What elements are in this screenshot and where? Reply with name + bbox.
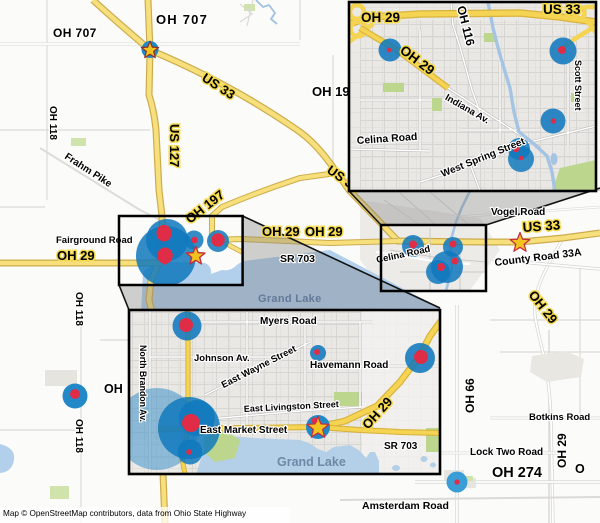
- svg-text:OH: OH: [104, 382, 123, 396]
- svg-text:OH 707: OH 707: [53, 26, 97, 40]
- svg-text:East Market Street: East Market Street: [200, 425, 288, 436]
- svg-text:OH 29: OH 29: [305, 224, 343, 239]
- svg-text:US 33: US 33: [522, 217, 561, 235]
- svg-text:OH 19: OH 19: [312, 84, 350, 99]
- svg-text:North Brandon Av.: North Brandon Av.: [138, 345, 148, 422]
- svg-text:SR 703: SR 703: [384, 441, 418, 452]
- svg-text:Grand Lake: Grand Lake: [258, 293, 322, 305]
- svg-text:Scott Street: Scott Street: [573, 60, 583, 111]
- svg-text:OH 29: OH 29: [361, 10, 400, 25]
- svg-text:OH 66: OH 66: [463, 378, 477, 413]
- svg-text:OH 118: OH 118: [73, 419, 84, 453]
- svg-text:Map © OpenStreetMap contributo: Map © OpenStreetMap contributors, data f…: [3, 509, 247, 518]
- svg-text:OH 29: OH 29: [262, 224, 300, 239]
- svg-text:OH 707: OH 707: [156, 12, 208, 27]
- svg-text:US 127: US 127: [167, 124, 182, 167]
- svg-text:OH 29: OH 29: [57, 248, 95, 263]
- svg-text:SR 703: SR 703: [280, 253, 315, 265]
- svg-text:OH 118: OH 118: [73, 292, 84, 326]
- svg-text:US 33: US 33: [543, 2, 581, 17]
- svg-text:Botkins Road: Botkins Road: [529, 412, 590, 423]
- svg-text:OH 274: OH 274: [492, 465, 542, 481]
- svg-text:Johnson Av.: Johnson Av.: [194, 353, 250, 364]
- svg-text:Amsterdam Road: Amsterdam Road: [362, 500, 449, 512]
- svg-text:Vogel Road: Vogel Road: [491, 207, 545, 218]
- svg-text:OH 29: OH 29: [555, 433, 569, 468]
- svg-text:Lock Two Road: Lock Two Road: [470, 447, 543, 458]
- svg-text:Myers Road: Myers Road: [260, 316, 317, 327]
- svg-text:Grand Lake: Grand Lake: [277, 455, 346, 469]
- svg-text:Havemann Road: Havemann Road: [310, 360, 388, 371]
- svg-text:O: O: [575, 462, 585, 476]
- svg-text:Fairground Road: Fairground Road: [56, 235, 133, 246]
- svg-text:OH 118: OH 118: [47, 106, 58, 140]
